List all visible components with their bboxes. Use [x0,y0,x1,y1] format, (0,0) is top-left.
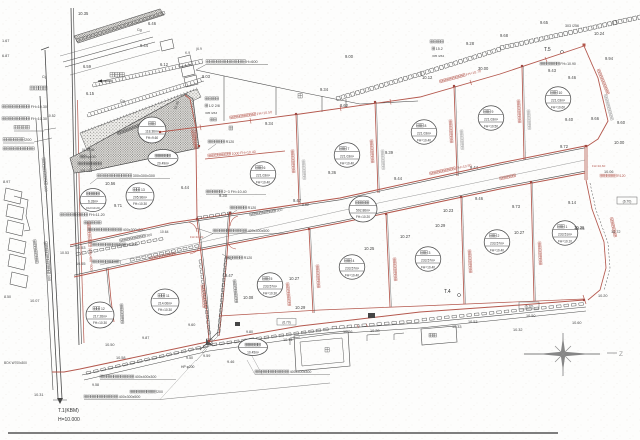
svg-text:217.26m²: 217.26m² [93,315,108,319]
svg-text:10.53: 10.53 [76,246,86,250]
svg-text:305 /211: 305 /211 [80,169,92,173]
svg-text:K.9: K.9 [185,51,190,55]
svg-text:118.36m²: 118.36m² [145,130,160,134]
svg-text:FH=11.20: FH=11.20 [89,213,105,217]
svg-text:FH=10.30: FH=10.30 [31,117,47,121]
svg-text:FH=10.40: FH=10.40 [490,248,504,252]
svg-text:9.34: 9.34 [265,121,274,126]
svg-text:9.40: 9.40 [565,117,574,122]
svg-text:233.57m²: 233.57m² [421,259,436,263]
svg-text:10.33: 10.33 [452,325,462,329]
svg-text:10.50: 10.50 [526,314,536,318]
svg-text:9.28: 9.28 [466,41,475,46]
svg-text:10.72: 10.72 [611,230,621,234]
svg-text:H=10.000: H=10.000 [58,417,80,423]
svg-text:(6.9: (6.9 [196,47,202,51]
svg-text:Cg: Cg [42,75,47,79]
svg-text:6: 6 [264,166,266,170]
svg-text:FH=10.60: FH=10.60 [592,164,606,168]
svg-text:9.43: 9.43 [548,68,557,73]
svg-text:10.07: 10.07 [30,299,40,303]
svg-text:FH=10.30: FH=10.30 [133,202,147,206]
svg-text:10.45m²: 10.45m² [247,351,259,355]
svg-text:9.94: 9.94 [605,56,614,61]
svg-text:10.27: 10.27 [400,234,411,239]
svg-text:R120: R120 [244,256,253,260]
svg-text:9.80: 9.80 [246,330,253,334]
svg-text:303 /256: 303 /256 [565,24,579,28]
svg-text:T.5: T.5 [544,47,551,53]
svg-text:233.51m²: 233.51m² [558,233,573,237]
svg-text:9.36: 9.36 [328,170,337,175]
svg-text:3: 3 [429,251,431,255]
svg-text:9.68: 9.68 [500,33,509,38]
svg-text:10.55: 10.55 [76,262,86,266]
svg-text:FH=10.30: FH=10.30 [31,105,47,109]
svg-text:305 /264: 305 /264 [432,54,444,58]
svg-text:9.62: 9.62 [302,203,309,207]
svg-text:10.64: 10.64 [160,230,169,234]
svg-text:10: 10 [559,91,563,95]
svg-text:8: 8 [425,124,427,128]
svg-text:13: 13 [141,188,145,192]
svg-text:10.27: 10.27 [514,230,525,235]
svg-text:R120: R120 [617,174,625,178]
svg-text:10.31: 10.31 [34,393,44,397]
svg-text:10.35: 10.35 [78,11,89,16]
svg-text:FH=10.30: FH=10.30 [158,308,172,312]
svg-text:10.29: 10.29 [435,223,446,228]
svg-text:6.15: 6.15 [86,91,95,96]
svg-text:10.29: 10.29 [295,305,306,310]
svg-text:10.56: 10.56 [105,181,116,186]
svg-text:(6.70): (6.70) [525,305,534,309]
svg-text:6.87: 6.87 [2,54,9,58]
svg-text:FH=10.20: FH=10.20 [190,235,204,239]
svg-text:2~3 FH=10.40: 2~3 FH=10.40 [224,190,247,194]
svg-text:FH=10.40: FH=10.40 [340,161,354,165]
svg-text:221.03m²: 221.03m² [551,99,566,103]
svg-text:10.52: 10.52 [47,114,56,118]
svg-text:9.58: 9.58 [92,383,99,387]
svg-text:10.27: 10.27 [289,276,300,281]
svg-text:FH=10.60: FH=10.60 [551,105,565,109]
svg-text:FH=10.40: FH=10.40 [256,180,270,184]
svg-text:6.33m²: 6.33m² [88,199,98,203]
svg-text:8.50: 8.50 [4,295,11,299]
svg-text:2: 2 [498,234,500,238]
svg-text:6.44: 6.44 [181,185,190,190]
svg-text:305 /263: 305 /263 [205,111,217,115]
svg-text:10.26: 10.26 [575,227,585,231]
svg-text:(6.70): (6.70) [623,200,632,204]
svg-text:9.47: 9.47 [225,273,234,278]
svg-text:Cg: Cg [137,28,142,32]
svg-text:H=600: H=600 [246,60,257,64]
svg-text:400x400x500: 400x400x500 [248,229,270,233]
svg-text:H=450: H=450 [127,243,138,247]
svg-text:7: 7 [348,147,350,151]
svg-text:T.4: T.4 [444,289,451,295]
svg-text:FH=10.30: FH=10.30 [263,291,277,295]
svg-text:9.46: 9.46 [475,196,484,201]
svg-text:10.20: 10.20 [598,294,608,298]
svg-text:233.57m²: 233.57m² [490,242,505,246]
svg-text:6.46: 6.46 [148,21,157,26]
svg-text:FH=10.30: FH=10.30 [93,321,107,325]
svg-text:FH=10.40: FH=10.40 [417,138,431,142]
svg-text:R120: R120 [226,140,235,144]
svg-text:221.03m²: 221.03m² [256,174,271,178]
svg-text:9.73: 9.73 [512,204,521,209]
svg-text:200: 200 [25,138,31,142]
svg-text:9.46: 9.46 [227,360,234,364]
svg-text:10.26: 10.26 [343,330,353,334]
svg-text:FH=9.60: FH=9.60 [146,136,159,140]
svg-text:400x400x300: 400x400x300 [135,375,157,379]
svg-text:9.46: 9.46 [568,75,577,80]
svg-text:10.53: 10.53 [60,251,69,255]
svg-text:10.06: 10.06 [604,170,614,174]
svg-text:9.60: 9.60 [617,120,626,125]
svg-text:233.57m²: 233.57m² [263,285,278,289]
svg-text:9.71: 9.71 [114,203,123,208]
svg-text:233.57m²: 233.57m² [345,267,360,271]
svg-text:12: 12 [101,307,105,311]
svg-text:10.00: 10.00 [614,140,625,145]
svg-text:10.12: 10.12 [422,75,433,80]
svg-text:8.97: 8.97 [3,180,10,184]
svg-text:FH=10.90: FH=10.90 [560,62,576,66]
svg-text:R120: R120 [248,206,257,210]
svg-text:9: 9 [492,110,494,114]
svg-text:FH=10.10: FH=10.10 [558,239,572,243]
svg-text:200: 200 [157,390,163,394]
svg-text:9.39: 9.39 [385,150,394,155]
svg-text:9.87: 9.87 [142,336,149,340]
svg-text:20.49m²: 20.49m² [157,162,169,166]
svg-text:9.65: 9.65 [540,20,549,25]
svg-text:9.14: 9.14 [568,200,577,205]
svg-text:10.50: 10.50 [105,343,115,347]
svg-text:9.66: 9.66 [591,116,600,121]
svg-text:9.44: 9.44 [394,176,403,181]
svg-text:5: 5 [271,277,273,281]
svg-text:1: 1 [566,225,568,229]
svg-text:205.96m²: 205.96m² [133,196,148,200]
svg-text:9.03: 9.03 [202,74,211,79]
svg-text:400x300x500: 400x300x500 [119,395,141,399]
svg-text:221.03m²: 221.03m² [484,118,499,122]
svg-text:Z: Z [619,351,623,358]
svg-text:9.50: 9.50 [186,356,193,360]
svg-text:1/2 2/8: 1/2 2/8 [209,104,220,108]
svg-text:FH=10.40: FH=10.40 [421,265,435,269]
svg-text:221.03m²: 221.03m² [417,132,432,136]
svg-text:FH=10.20: FH=10.20 [356,215,370,219]
svg-text:300x300x300: 300x300x300 [133,174,155,178]
svg-text:15.2: 15.2 [436,47,443,51]
svg-text:10.53: 10.53 [468,320,478,324]
svg-text:214.06m²: 214.06m² [158,302,173,306]
svg-text:6.44: 6.44 [140,43,149,48]
svg-text:10.14: 10.14 [283,338,293,342]
svg-text:9.72: 9.72 [560,144,569,149]
svg-text:FH=10.20: FH=10.20 [86,206,100,210]
svg-text:221.03m²: 221.03m² [340,155,355,159]
svg-text:6.12: 6.12 [160,62,169,67]
svg-text:9.34: 9.34 [320,87,329,92]
svg-text:10.23: 10.23 [443,208,454,213]
svg-text:9.60: 9.60 [188,323,195,327]
svg-text:10.32: 10.32 [513,328,523,332]
svg-text:10.60: 10.60 [572,321,582,325]
svg-text:10.58: 10.58 [116,356,126,360]
svg-text:10.08: 10.08 [243,295,254,300]
svg-text:FH=10.50: FH=10.50 [484,124,498,128]
svg-text:04 10.46: 04 10.46 [82,148,95,152]
svg-text:T.1(KBM): T.1(KBM) [58,408,79,414]
svg-text:9.47: 9.47 [293,198,302,203]
svg-text:10.24: 10.24 [594,31,605,36]
svg-text:300: 300 [46,275,51,282]
svg-text:9.59: 9.59 [203,354,210,358]
svg-text:9.00: 9.00 [345,54,354,59]
svg-text:10.28: 10.28 [370,329,380,333]
svg-text:BOX W700x300: BOX W700x300 [4,361,27,365]
svg-text:4: 4 [353,259,355,263]
svg-text:300: 300 [43,186,48,192]
svg-text:6.59: 6.59 [83,64,92,69]
svg-text:HP φ200: HP φ200 [181,365,195,369]
svg-text:(6.70): (6.70) [282,321,290,325]
svg-text:10.25: 10.25 [364,246,375,251]
svg-text:1.67: 1.67 [2,39,9,43]
svg-text:φ100: φ100 [87,155,95,159]
svg-text:592.86m²: 592.86m² [356,209,371,213]
svg-text:FH=10.40: FH=10.40 [345,273,359,277]
svg-text:11: 11 [166,294,170,298]
